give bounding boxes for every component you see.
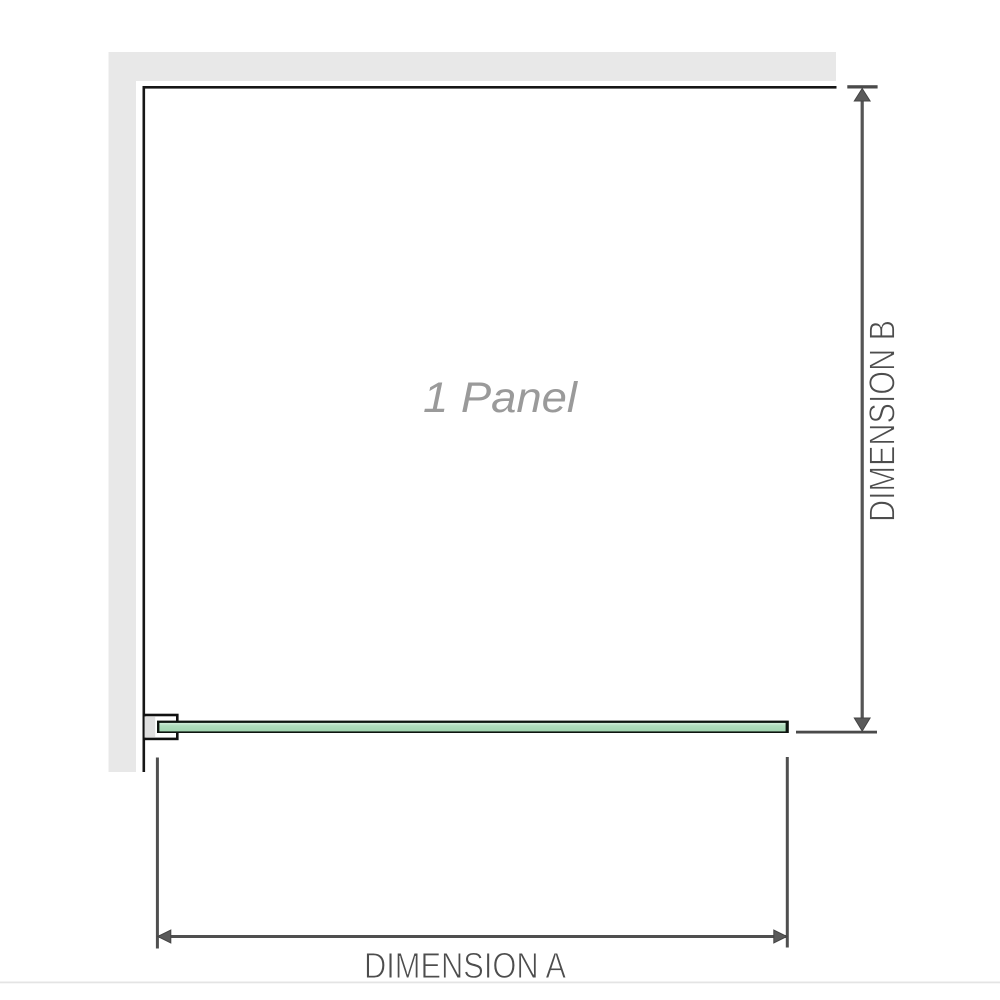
svg-text:1 Panel: 1 Panel (423, 374, 579, 422)
svg-text:DIMENSION A: DIMENSION A (364, 945, 566, 986)
svg-text:DIMENSION B: DIMENSION B (862, 320, 903, 522)
